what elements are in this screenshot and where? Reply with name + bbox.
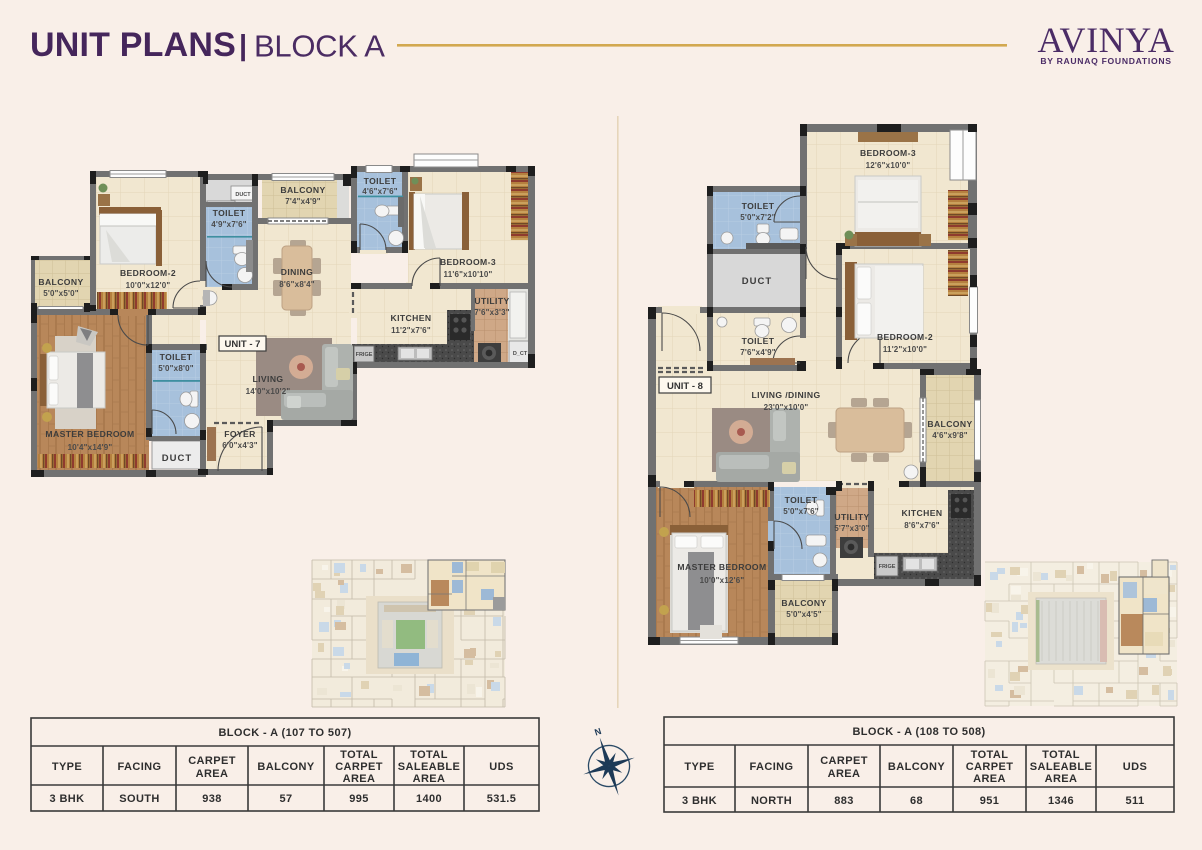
svg-text:68: 68 xyxy=(910,795,923,807)
svg-text:DUCT: DUCT xyxy=(742,276,772,287)
svg-text:|: | xyxy=(239,30,247,62)
svg-text:LIVING /DINING: LIVING /DINING xyxy=(751,390,820,400)
svg-text:TOILET: TOILET xyxy=(742,336,775,346)
svg-text:BALCONY: BALCONY xyxy=(888,761,945,773)
svg-text:5'0"x4'5": 5'0"x4'5" xyxy=(786,610,821,619)
svg-text:TYPE: TYPE xyxy=(52,761,82,773)
svg-text:UNIT - 7: UNIT - 7 xyxy=(225,339,261,350)
svg-text:4'9"x7'6": 4'9"x7'6" xyxy=(211,220,246,229)
svg-text:11'6"x10'10": 11'6"x10'10" xyxy=(444,270,493,279)
svg-text:AREA: AREA xyxy=(1045,773,1078,785)
svg-text:FOYER: FOYER xyxy=(224,429,256,439)
svg-text:10'4"x14'9": 10'4"x14'9" xyxy=(68,443,113,452)
svg-text:7'4"x4'9": 7'4"x4'9" xyxy=(285,197,320,206)
svg-text:CARPET: CARPET xyxy=(335,761,383,773)
svg-text:FRIGE: FRIGE xyxy=(356,352,373,358)
svg-text:8'6"x7'6": 8'6"x7'6" xyxy=(904,521,939,530)
svg-text:TYPE: TYPE xyxy=(684,761,714,773)
svg-text:D_CT: D_CT xyxy=(513,351,528,357)
svg-text:5'0"x7'6": 5'0"x7'6" xyxy=(783,507,818,516)
svg-text:4'6"x7'6": 4'6"x7'6" xyxy=(362,187,397,196)
svg-text:UTILITY: UTILITY xyxy=(474,296,509,306)
svg-text:TOILET: TOILET xyxy=(742,201,775,211)
svg-text:BALCONY: BALCONY xyxy=(38,277,83,287)
svg-text:23'0"x10'0": 23'0"x10'0" xyxy=(764,403,809,412)
svg-text:CARPET: CARPET xyxy=(966,761,1014,773)
svg-text:10'0"x12'6": 10'0"x12'6" xyxy=(700,576,745,585)
svg-text:1400: 1400 xyxy=(416,793,442,805)
svg-text:BEDROOM-3: BEDROOM-3 xyxy=(860,148,916,158)
svg-text:AVINYA: AVINYA xyxy=(1038,20,1175,60)
svg-text:UDS: UDS xyxy=(1123,761,1147,773)
svg-text:938: 938 xyxy=(202,793,222,805)
svg-text:511: 511 xyxy=(1126,795,1145,807)
svg-text:1346: 1346 xyxy=(1048,795,1074,807)
svg-text:BEDROOM-3: BEDROOM-3 xyxy=(440,257,496,267)
svg-text:AREA: AREA xyxy=(343,773,376,785)
svg-text:NORTH: NORTH xyxy=(751,795,792,807)
svg-text:8'6"x8'4": 8'6"x8'4" xyxy=(279,280,314,289)
svg-text:531.5: 531.5 xyxy=(487,793,517,805)
svg-text:BALCONY: BALCONY xyxy=(927,419,972,429)
svg-text:UTILITY: UTILITY xyxy=(834,512,869,522)
svg-text:SALEABLE: SALEABLE xyxy=(398,761,460,773)
svg-text:5'0"x7'2": 5'0"x7'2" xyxy=(740,213,775,222)
svg-text:SALEABLE: SALEABLE xyxy=(1030,761,1092,773)
svg-text:KITCHEN: KITCHEN xyxy=(391,313,432,323)
svg-text:CARPET: CARPET xyxy=(820,755,868,767)
svg-text:KITCHEN: KITCHEN xyxy=(902,508,943,518)
svg-text:FACING: FACING xyxy=(118,761,162,773)
svg-text:AREA: AREA xyxy=(828,768,861,780)
svg-text:BLOCK - A (107 TO 507): BLOCK - A (107 TO 507) xyxy=(218,727,351,739)
svg-text:995: 995 xyxy=(349,793,369,805)
svg-text:DUCT: DUCT xyxy=(162,453,192,464)
svg-text:5'7"x3'0": 5'7"x3'0" xyxy=(834,524,869,533)
svg-text:BLOCK A: BLOCK A xyxy=(254,29,385,64)
svg-text:4'6"x9'8": 4'6"x9'8" xyxy=(932,431,967,440)
svg-text:BY RAUNAQ FOUNDATIONS: BY RAUNAQ FOUNDATIONS xyxy=(1040,56,1171,66)
svg-text:MASTER BEDROOM: MASTER BEDROOM xyxy=(45,429,134,439)
svg-text:TOILET: TOILET xyxy=(160,352,193,362)
svg-text:UDS: UDS xyxy=(489,761,513,773)
svg-text:FACING: FACING xyxy=(750,761,794,773)
svg-text:TOILET: TOILET xyxy=(364,176,397,186)
svg-text:5'0"x5'0": 5'0"x5'0" xyxy=(43,289,78,298)
svg-text:BEDROOM-2: BEDROOM-2 xyxy=(120,268,176,278)
svg-text:AREA: AREA xyxy=(413,773,446,785)
svg-text:BALCONY: BALCONY xyxy=(257,761,314,773)
svg-text:AREA: AREA xyxy=(973,773,1006,785)
svg-text:BLOCK - A (108 TO 508): BLOCK - A (108 TO 508) xyxy=(852,726,985,738)
svg-text:883: 883 xyxy=(834,795,854,807)
svg-text:TOTAL: TOTAL xyxy=(340,749,378,761)
svg-text:CARPET: CARPET xyxy=(188,755,236,767)
svg-text:LIVING: LIVING xyxy=(252,374,283,384)
svg-text:57: 57 xyxy=(279,793,292,805)
svg-text:MASTER BEDROOM: MASTER BEDROOM xyxy=(677,562,766,572)
svg-text:TOTAL: TOTAL xyxy=(1042,749,1080,761)
svg-text:7'6"x3'3": 7'6"x3'3" xyxy=(474,308,509,317)
svg-text:UNIT - 8: UNIT - 8 xyxy=(667,381,703,392)
svg-text:3 BHK: 3 BHK xyxy=(682,795,717,807)
svg-text:SOUTH: SOUTH xyxy=(119,793,160,805)
svg-text:BALCONY: BALCONY xyxy=(280,185,325,195)
svg-text:14'0"x10'2": 14'0"x10'2" xyxy=(246,387,291,396)
svg-text:UNIT PLANS: UNIT PLANS xyxy=(30,26,236,64)
svg-text:7'6"x4'9": 7'6"x4'9" xyxy=(740,348,775,357)
svg-text:TOTAL: TOTAL xyxy=(971,749,1009,761)
svg-text:12'6"x10'0": 12'6"x10'0" xyxy=(866,161,911,170)
svg-text:TOILET: TOILET xyxy=(213,208,246,218)
svg-text:5'0"x8'0": 5'0"x8'0" xyxy=(158,364,193,373)
svg-text:10'0"x12'0": 10'0"x12'0" xyxy=(126,281,171,290)
svg-text:6'0"x4'3": 6'0"x4'3" xyxy=(222,441,257,450)
svg-text:DUCT: DUCT xyxy=(235,192,251,198)
svg-text:FRIGE: FRIGE xyxy=(879,564,896,570)
svg-text:AREA: AREA xyxy=(196,768,229,780)
svg-text:TOILET: TOILET xyxy=(785,495,818,505)
svg-text:TOTAL: TOTAL xyxy=(410,749,448,761)
svg-text:DINING: DINING xyxy=(281,267,313,277)
svg-text:951: 951 xyxy=(980,795,1000,807)
svg-text:11'2"x7'6": 11'2"x7'6" xyxy=(391,326,431,335)
svg-text:BEDROOM-2: BEDROOM-2 xyxy=(877,332,933,342)
svg-text:3 BHK: 3 BHK xyxy=(49,793,84,805)
svg-text:BALCONY: BALCONY xyxy=(781,598,826,608)
svg-text:11'2"x10'0": 11'2"x10'0" xyxy=(883,345,927,354)
